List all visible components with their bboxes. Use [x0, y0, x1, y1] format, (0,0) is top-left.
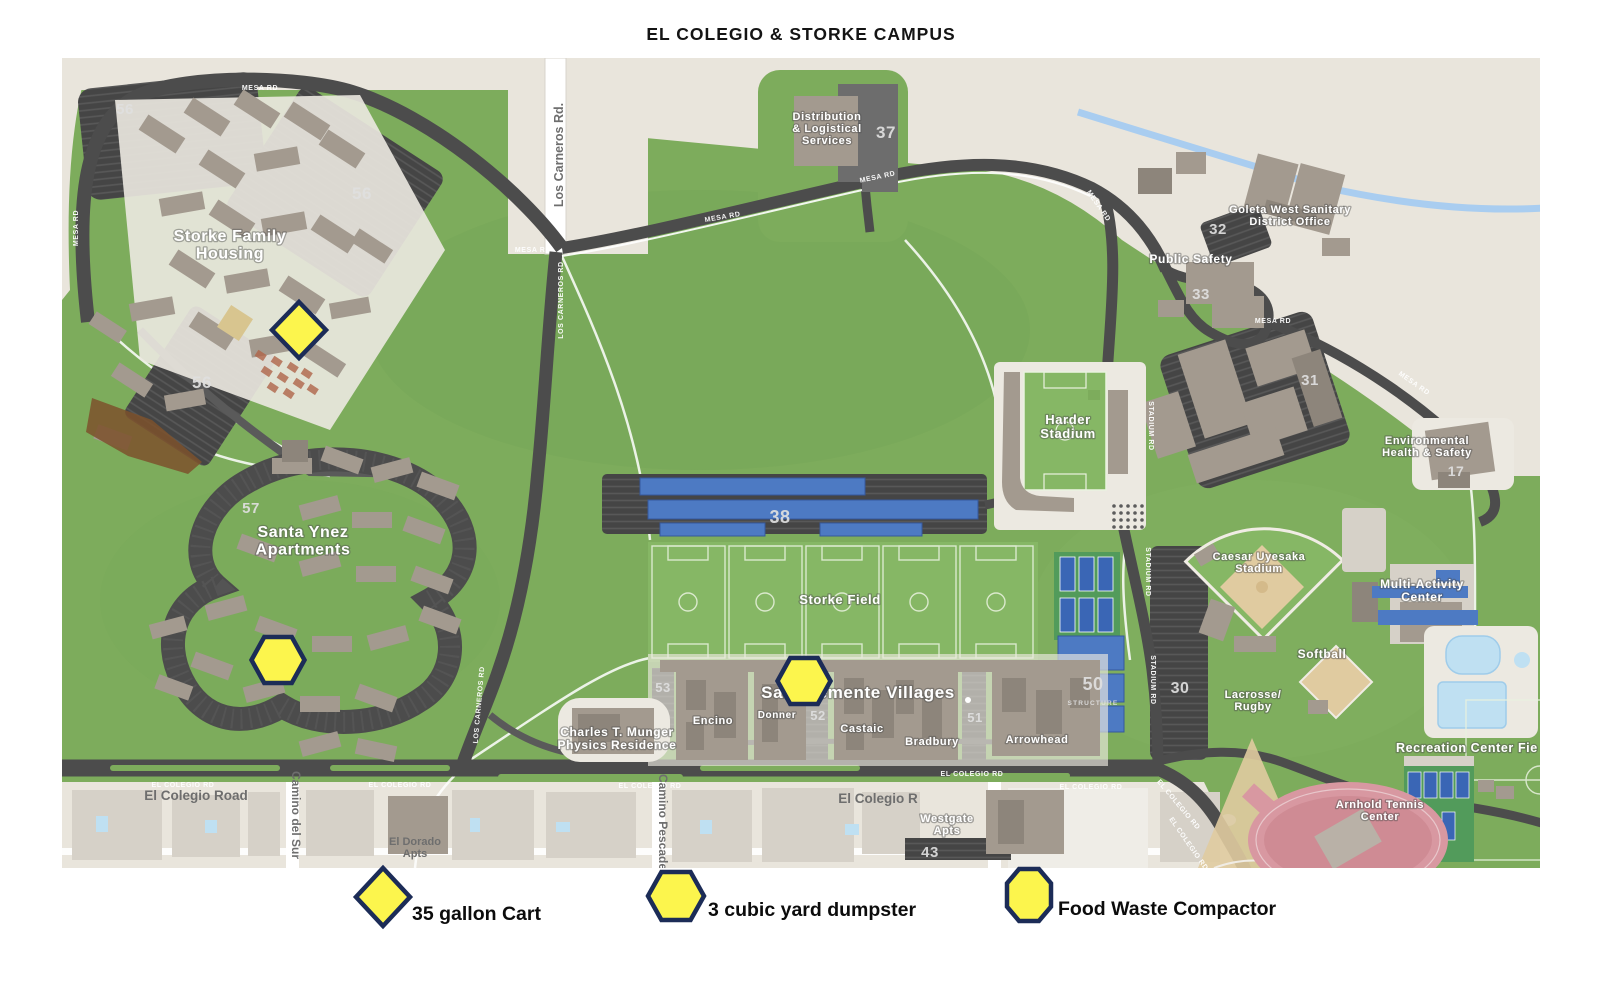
legend-label-hexagon: 3 cubic yard dumpster — [708, 899, 916, 921]
place-label-line: Public Safety — [1149, 252, 1232, 266]
place-label-line: Bradbury — [905, 736, 959, 748]
street-label-line: El Dorado — [389, 836, 441, 848]
legend-octagon-icon — [1007, 869, 1051, 921]
street-label-el-colegio-r-name: El Colegio R — [838, 791, 918, 806]
lot-number-37: 37 — [876, 123, 896, 142]
lot-number-30: 30 — [1171, 680, 1190, 697]
place-label-encino: Encino — [693, 715, 733, 727]
place-label-line: Environmental — [1385, 435, 1469, 447]
road-label-mesa-rd: MESA RD — [1255, 318, 1291, 325]
place-label-line: Storke Family — [174, 228, 287, 245]
place-label-line: Center — [1361, 811, 1400, 823]
road-label-stadium-rd: STADIUM RD — [1147, 401, 1154, 450]
place-label-line: Castaic — [840, 723, 883, 735]
street-label-line: Los Carneros Rd. — [552, 103, 566, 207]
lot-number-33: 33 — [1192, 286, 1210, 303]
lot-number-51: 51 — [967, 710, 982, 725]
road-label-stadium-rd: STADIUM RD — [1149, 655, 1156, 704]
street-label-camino-del-sur-name: Camino del Sur — [289, 771, 303, 859]
street-label-los-carneros-rd-name: Los Carneros Rd. — [552, 103, 566, 207]
lot-number-structure: STRUCTURE — [1068, 700, 1119, 707]
place-label-line: Stadium — [1040, 426, 1095, 441]
map: MESA RDMESA RDMESA RDMESA RDMESA RDMESA … — [62, 58, 1602, 898]
stadium-side-building — [1342, 508, 1386, 572]
lot-number-52: 52 — [810, 708, 825, 723]
place-label-line: Lacrosse/ — [1225, 689, 1282, 701]
place-label-line: District Office — [1249, 216, 1330, 228]
place-label-line: Distribution — [793, 111, 862, 123]
place-label-harder-stadium: HarderStadium — [1040, 412, 1095, 441]
place-label-line: Goleta West Sanitary — [1229, 204, 1351, 216]
place-label-santa-ynez-apartments: Santa YnezApartments — [256, 524, 351, 558]
place-label-line: Westgate — [920, 813, 974, 825]
lot-number-57: 57 — [242, 500, 260, 517]
place-label-line: Arnhold Tennis — [1336, 799, 1424, 811]
lot-number-56: 56 — [116, 101, 134, 118]
street-label-line: El Colegio Road — [144, 788, 248, 803]
tennis-courts-6-layer — [1054, 552, 1120, 640]
road-label-el-colegio-rd: EL COLEGIO RD — [941, 771, 1004, 778]
road-label-mesa-rd: MESA RD — [242, 85, 278, 92]
legend-label-diamond: 35 gallon Cart — [412, 903, 541, 925]
place-label-munger-physics-residence: Charles T. MungerPhysics Residence — [558, 725, 677, 752]
road-label-el-colegio-rd: EL COLEGIO RD — [1060, 784, 1123, 791]
place-label-line: Health & Safety — [1382, 447, 1472, 459]
street-label-line: Apts — [403, 848, 427, 860]
san-clemente-layer — [648, 654, 1108, 766]
street-label-line: Camino del Sur — [289, 771, 303, 859]
place-label-softball: Softball — [1298, 647, 1347, 661]
lot-number-38: 38 — [769, 507, 790, 527]
place-label-line: Arrowhead — [1006, 734, 1069, 746]
place-label-line: & Logistical — [792, 123, 862, 135]
campus-map-svg: EL COLEGIO & STORKE CAMPUS — [0, 0, 1602, 988]
place-label-environmental-health-safety: EnvironmentalHealth & Safety — [1382, 435, 1472, 459]
place-label-storke-field: Storke Field — [799, 592, 881, 607]
place-label-public-safety: Public Safety — [1149, 252, 1232, 266]
road-label-el-colegio-rd: EL COLEGIO RD — [619, 783, 682, 790]
street-label-line: El Colegio R — [838, 791, 918, 806]
street-label-line: Camino Pescadero — [656, 774, 670, 882]
place-label-recreation-center-fields: Recreation Center Fie — [1396, 741, 1538, 755]
place-label-line: Stadium — [1235, 563, 1283, 575]
lot-number-56: 56 — [352, 184, 372, 203]
lot-number-31: 31 — [1301, 372, 1319, 389]
place-label-line: Donner — [758, 710, 797, 721]
lot-number-50: 50 — [1082, 674, 1103, 694]
road-label-el-colegio-rd: EL COLEGIO RD — [369, 782, 432, 789]
screenshot-page: EL COLEGIO & STORKE CAMPUS — [0, 0, 1602, 988]
place-label-line: Charles T. Munger — [560, 725, 674, 739]
place-label-donner: Donner — [758, 710, 797, 721]
place-label-line: Apts — [934, 825, 961, 837]
place-label-line: Housing — [196, 245, 264, 262]
place-label-line: Physics Residence — [558, 738, 677, 752]
lot-number-17: 17 — [1448, 463, 1465, 479]
place-label-line: Center — [1401, 590, 1443, 604]
road-label-los-carneros-rd: LOS CARNEROS RD — [558, 261, 565, 338]
place-label-line: Santa Ynez — [257, 524, 348, 541]
place-label-line: Softball — [1298, 647, 1347, 661]
place-label-distribution-logistical-services: Distribution& LogisticalServices — [792, 111, 862, 147]
road-label-mesa-rd: MESA RD — [515, 247, 551, 254]
map-marker-hexagon — [252, 637, 305, 683]
lot-number-43: 43 — [921, 844, 939, 861]
lot-number-53: 53 — [655, 680, 670, 695]
place-label-line: Rugby — [1234, 701, 1272, 713]
road-label-stadium-rd: STADIUM RD — [1144, 547, 1151, 596]
legend-label-octagon: Food Waste Compactor — [1058, 898, 1277, 920]
place-label-line: Caesar Uyesaka — [1213, 551, 1306, 563]
legend-hexagon-icon — [648, 872, 704, 920]
street-label-el-colegio-road-name: El Colegio Road — [144, 788, 248, 803]
place-label-line: Recreation Center Fie — [1396, 741, 1538, 755]
place-label-line: Apartments — [256, 541, 351, 558]
place-label-line: Harder — [1045, 412, 1091, 427]
place-label-line: Encino — [693, 715, 733, 727]
place-label-castaic: Castaic — [840, 723, 883, 735]
harder-stadium-layer — [994, 362, 1146, 530]
place-label-arrowhead: Arrowhead — [1006, 734, 1069, 746]
place-label-bradbury: Bradbury — [905, 736, 959, 748]
page-title: EL COLEGIO & STORKE CAMPUS — [646, 24, 955, 44]
lot-number-56: 56 — [192, 373, 212, 392]
place-label-line: Services — [802, 135, 852, 147]
street-label-camino-pescadero-name: Camino Pescadero — [656, 774, 670, 882]
place-label-line: Multi-Activity — [1380, 577, 1464, 591]
place-label-line: Storke Field — [799, 592, 881, 607]
road-label-mesa-rd: MESA RD — [73, 210, 80, 246]
lot-number-32: 32 — [1209, 221, 1227, 238]
map-marker-hexagon — [778, 658, 831, 704]
